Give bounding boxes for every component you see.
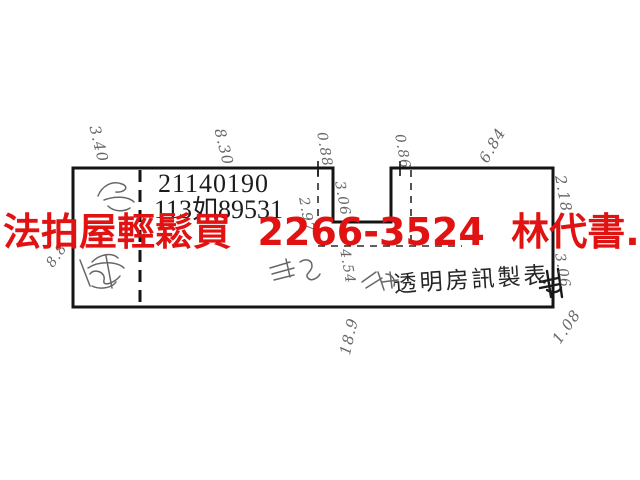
parcel-number: 21140190 <box>158 171 269 197</box>
scanned-floor-plan: 21140190 113如89531 3.40 8.30 0.88 0.86 6… <box>0 0 640 480</box>
handwriting-scribble <box>80 255 124 289</box>
watermark-text: 法拍屋輕鬆買 2266-3524 林代書.林經理 <box>3 211 640 255</box>
handwriting-scribble <box>270 259 320 280</box>
handwriting-scribble <box>98 183 134 211</box>
